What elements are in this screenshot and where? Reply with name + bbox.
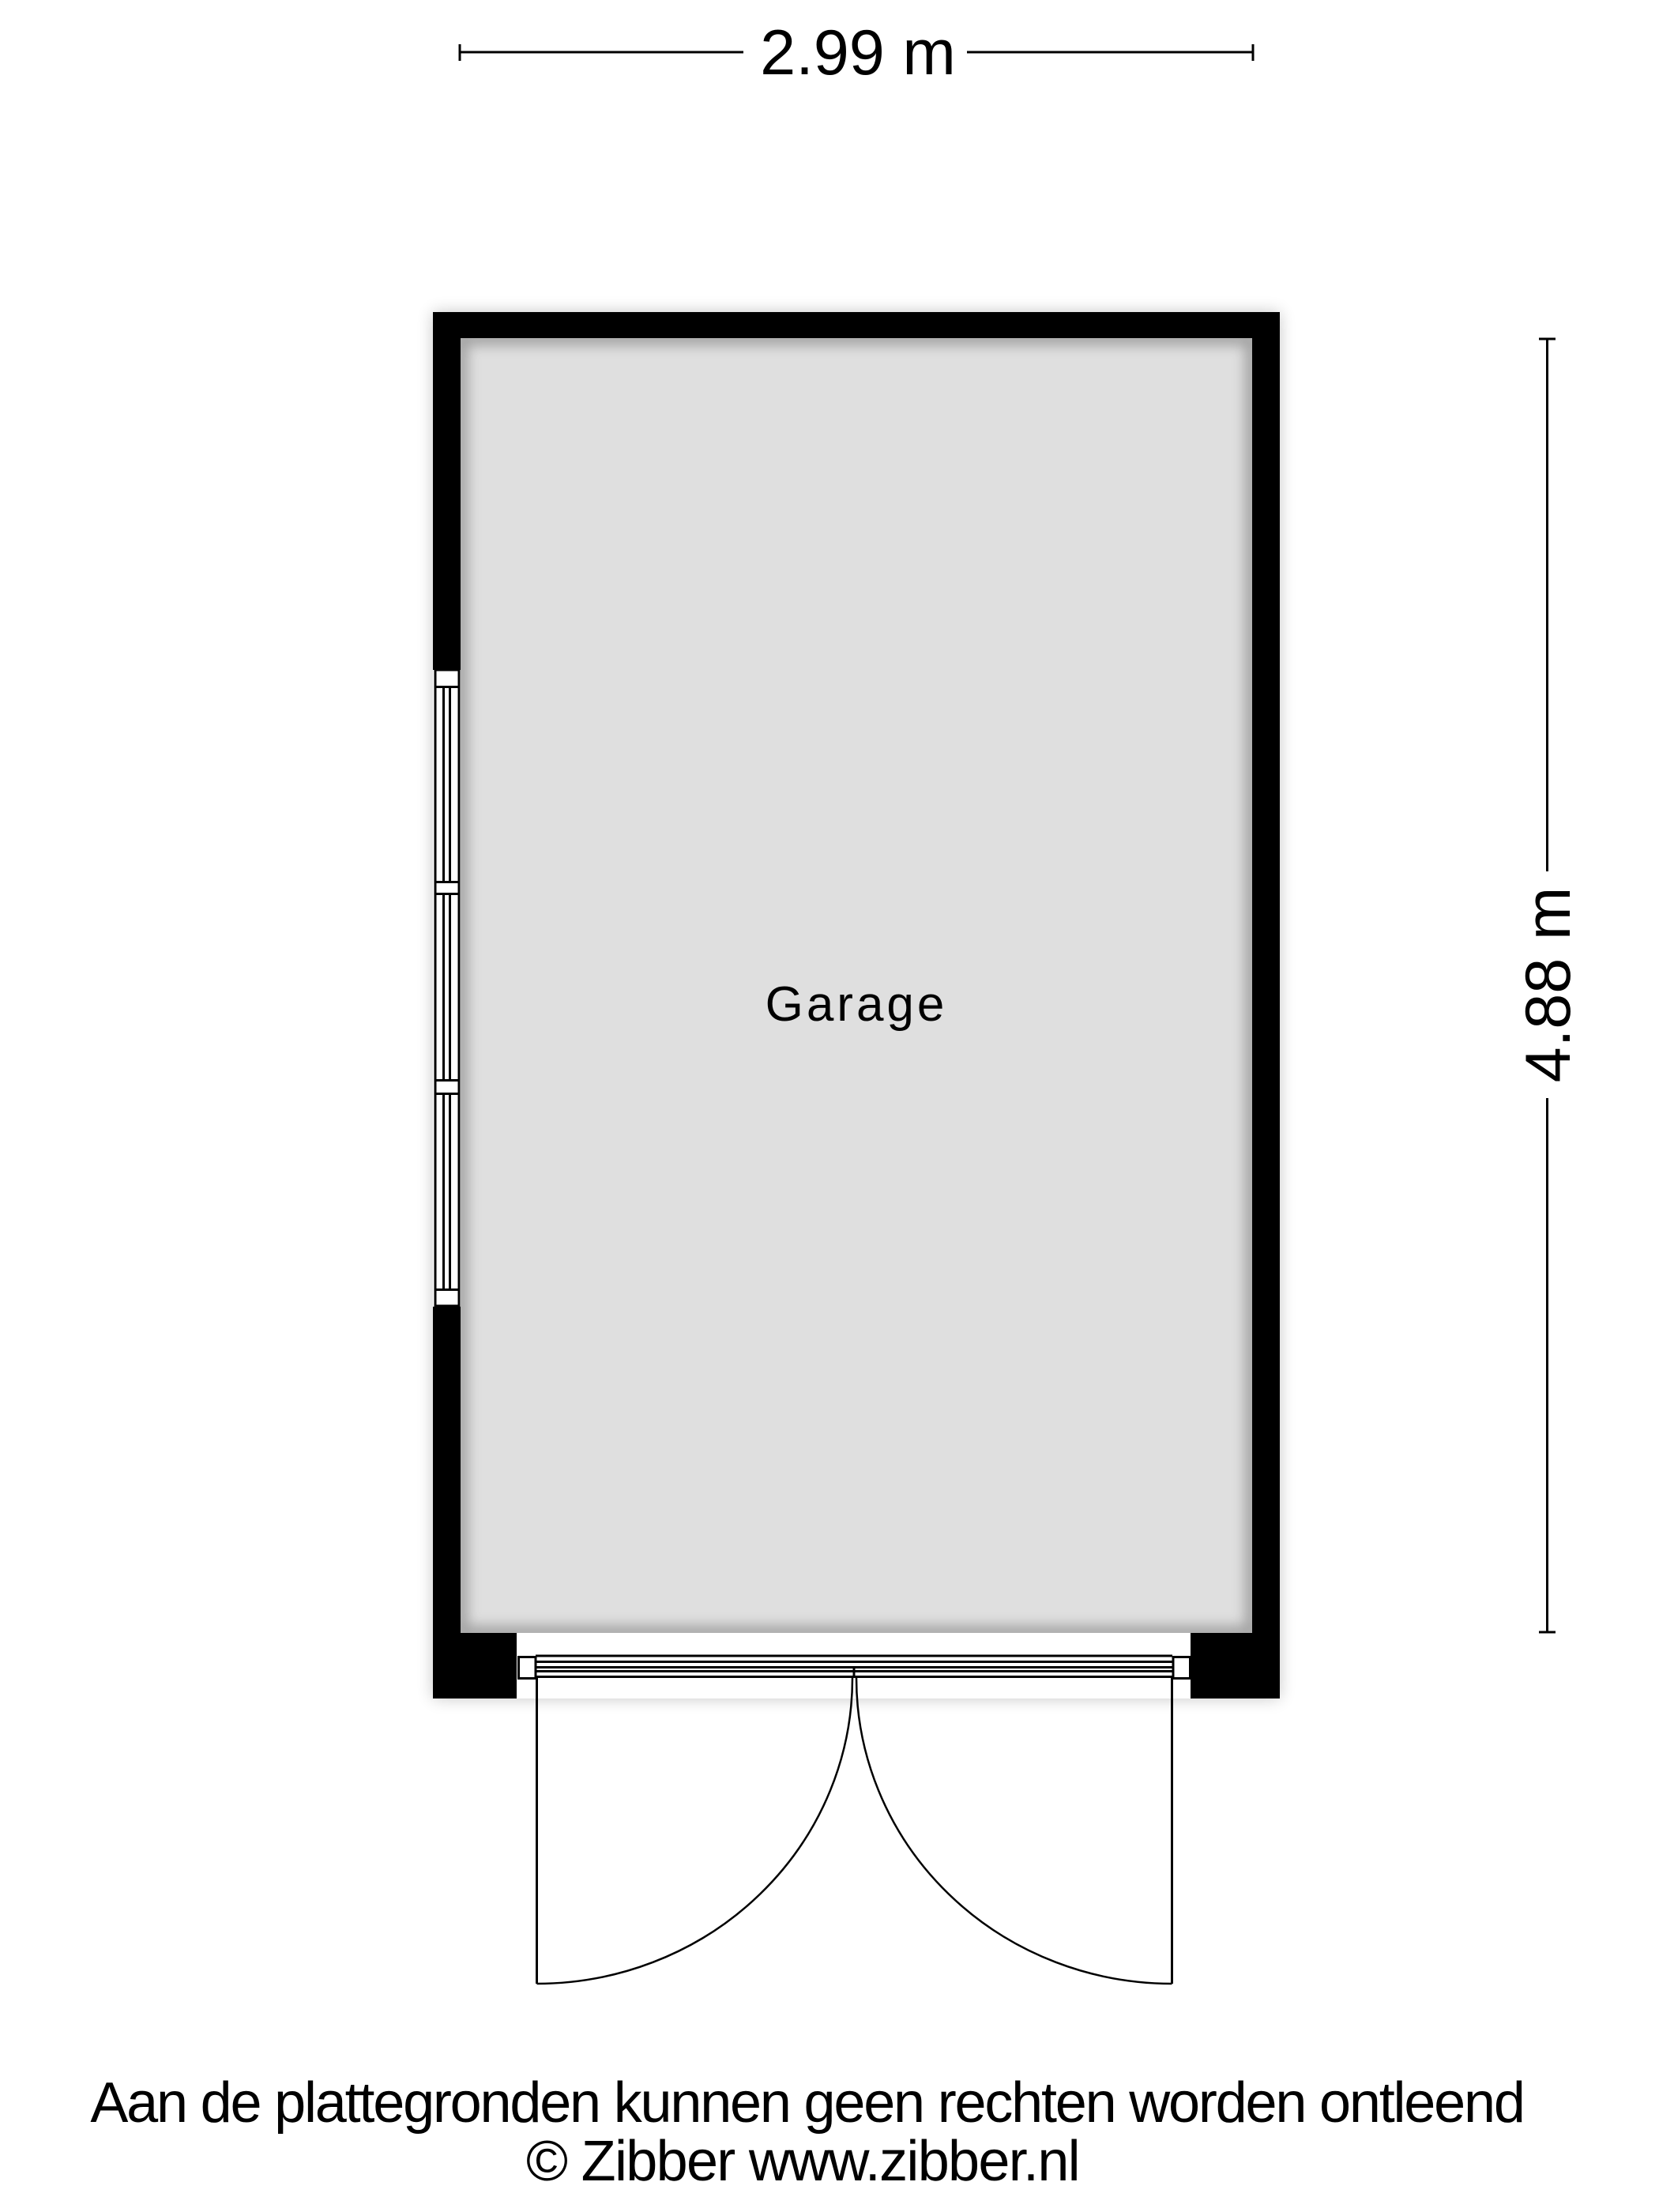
svg-text:4.88 m: 4.88 m: [1513, 887, 1584, 1083]
svg-text:Garage: Garage: [766, 977, 948, 1032]
svg-text:© Zibber www.zibber.nl: © Zibber www.zibber.nl: [526, 2130, 1079, 2193]
svg-text:Aan de plattegronden kunnen ge: Aan de plattegronden kunnen geen rechten…: [90, 2071, 1523, 2135]
svg-text:2.99 m: 2.99 m: [760, 17, 956, 88]
